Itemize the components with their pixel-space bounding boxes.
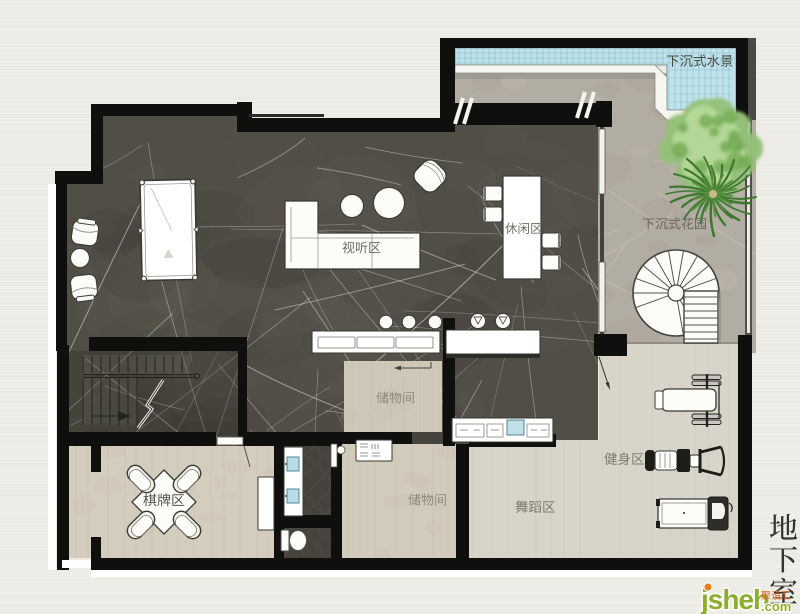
svg-text:.com: .com xyxy=(761,599,791,614)
